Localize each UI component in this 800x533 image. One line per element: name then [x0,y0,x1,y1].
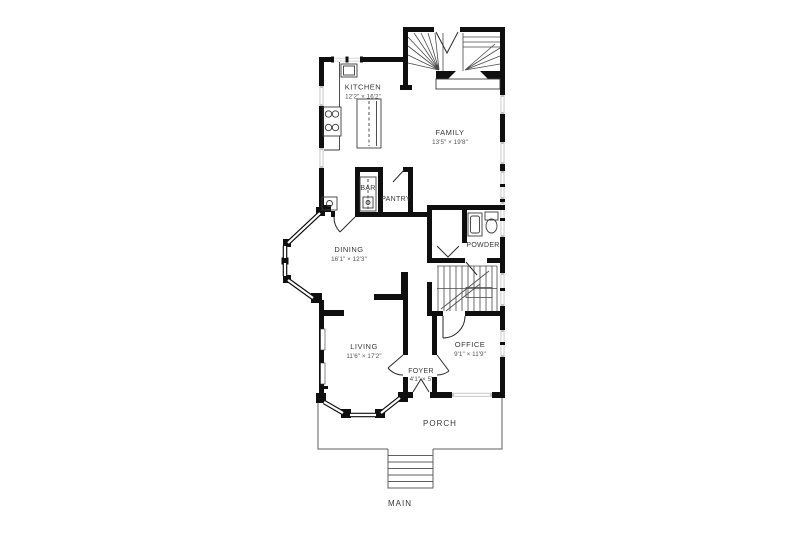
room-label-dining: DINING [334,245,363,254]
floor-plan-page: KITCHEN 12'2" × 16'2" FAMILY 13'5" × 19'… [0,0,800,533]
room-label-powder: POWDER [466,242,499,249]
entry-steps [388,449,433,488]
room-label-foyer: FOYER [408,368,434,375]
room-label-pantry: PANTRY [381,196,411,203]
floor-plan-canvas: KITCHEN 12'2" × 16'2" FAMILY 13'5" × 19'… [0,0,800,533]
room-label-living: LIVING [350,342,378,351]
room-label-main: MAIN [388,499,412,508]
vanity-sink-icon [468,213,482,236]
kitchen-island [357,99,381,148]
kitchen-counter [324,62,340,150]
room-label-porch: PORCH [423,419,457,428]
room-label-family: FAMILY [435,128,464,137]
room-label-office: OFFICE [455,340,486,349]
porch-outline [318,397,502,449]
toilet-icon [485,212,498,233]
room-label-bar: BAR [360,185,375,192]
bay-window-dining [285,213,320,298]
room-dims-dining: 16'1" × 12'3" [331,256,367,263]
stairs-main [437,266,497,311]
room-dims-living: 11'6" × 17'2" [346,353,381,360]
walls [282,27,506,418]
room-label-kitchen: KITCHEN [345,83,381,92]
kitchen-sink-icon [341,64,357,77]
room-dims-family: 13'5" × 19'8" [432,139,468,146]
bar-counter [360,177,376,211]
rear-landing-step [436,79,500,89]
rear-entry-door [436,32,458,53]
room-dims-kitchen: 12'2" × 16'2" [345,94,381,101]
room-dims-foyer: 4'1" × 5' [410,376,433,383]
cooktop-icon [323,107,341,136]
room-dims-office: 9'1" × 11'9" [454,351,486,358]
bay-window-living [324,398,400,415]
